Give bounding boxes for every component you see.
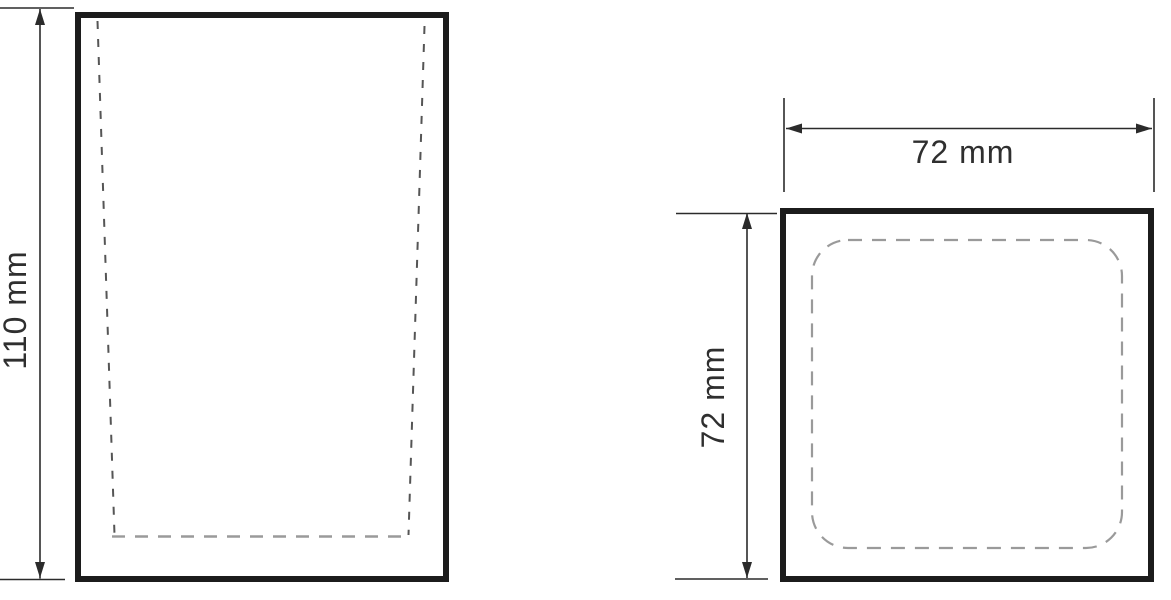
top-width-arrow-left-icon: [786, 124, 802, 134]
top-depth-label: 72 mm: [693, 297, 733, 497]
front-height-arrow-up-icon: [35, 9, 45, 25]
top-width-arrow-right-icon: [1136, 124, 1152, 134]
top-depth-arrow-down-icon: [742, 562, 752, 578]
top-width-label: 72 mm: [863, 132, 1063, 172]
dimension-drawing: 110 mm 72 mm 72 mm: [0, 0, 1171, 600]
front-height-label: 110 mm: [0, 210, 35, 410]
front-view: [78, 15, 446, 579]
top-depth-arrow-up-icon: [742, 213, 752, 229]
front-height-arrow-down-icon: [35, 562, 45, 578]
top-view-outline: [783, 211, 1151, 579]
drawing-canvas: [0, 0, 1171, 600]
front-view-outline: [78, 15, 446, 579]
top-view: [783, 211, 1151, 579]
